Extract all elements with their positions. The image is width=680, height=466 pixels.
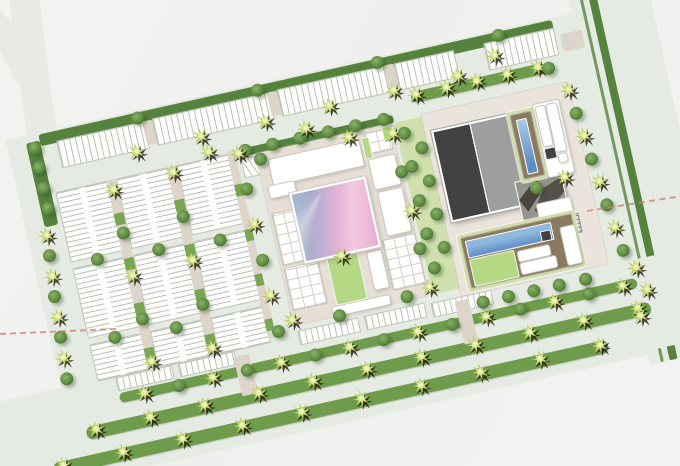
service-core xyxy=(540,229,553,242)
site-plan-canvas xyxy=(0,0,680,466)
service-core xyxy=(544,146,558,160)
